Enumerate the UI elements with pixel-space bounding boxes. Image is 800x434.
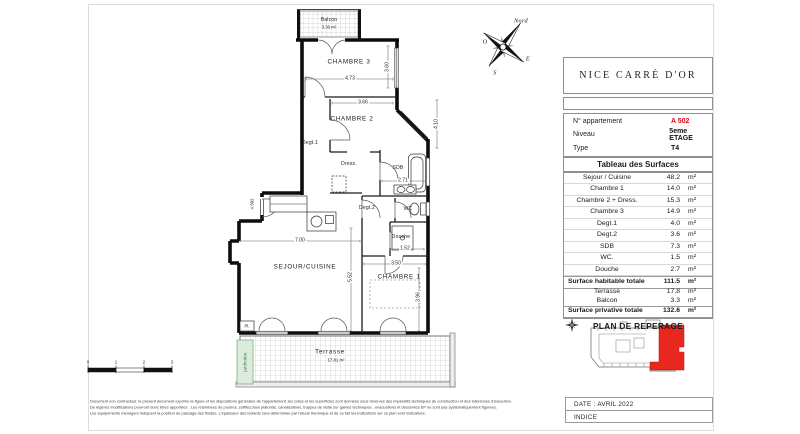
surface-row: Degt.1 4.0 m²: [564, 219, 712, 230]
compass-rose: [469, 9, 541, 82]
surfaces-table: Sejour / Cuisine 48.2 m² Chambre 1 14.0 …: [563, 172, 713, 319]
compass-north-label: Nord: [514, 18, 528, 25]
dim-chambre2-width: 3.66: [357, 101, 369, 106]
room-label-sejour: SEJOUR/CUISINE: [274, 264, 337, 271]
surface-row: Chambre 1 14.0 m²: [564, 184, 712, 195]
surface-row: Chambre 2 + Dress. 15.3 m²: [564, 196, 712, 207]
date-row: DATE : AVRIL 2022: [566, 398, 712, 411]
dim-sejour-width: 7.00: [294, 239, 306, 244]
surface-row: WC. 1.5 m²: [564, 253, 712, 264]
room-label-terrasse: Terrasse: [315, 349, 345, 356]
room-label-wc: WC: [404, 206, 413, 212]
room-label-chambre2: CHAMBRE 2: [330, 116, 373, 123]
entry-door-label: A 502: [250, 199, 255, 210]
surface-row: Sejour / Cuisine 48.2 m²: [564, 173, 712, 184]
indice-row: INDICE: [566, 411, 712, 424]
room-label-degt2: Degt.2: [359, 205, 375, 211]
room-label-balcon: Balcon: [321, 17, 338, 23]
surfaces-table-title: Tableau des Surfaces: [563, 157, 713, 172]
room-label-chambre1: CHAMBRE 1: [377, 274, 420, 281]
surface-row: Douche 2.7 m²: [564, 265, 712, 276]
area-label-balcon: 3.30 m²: [322, 25, 337, 30]
apartment-level: 5eme ETAGE: [669, 128, 712, 142]
surface-total-privative: Surface privative totale 132.6 m²: [564, 306, 712, 318]
area-label-terrasse: 17.81 m²: [328, 358, 345, 363]
surface-row-balcon: Balcon 3.3 m²: [564, 297, 712, 306]
info-row-niveau: Niveau 5eme ETAGE: [564, 128, 712, 142]
project-title: NICE CARRÉ D'OR: [579, 70, 697, 81]
surface-row: SDB 7.3 m²: [564, 242, 712, 253]
chambre1-dashed-zone: [370, 280, 420, 308]
info-label: N° appartement: [564, 118, 671, 125]
surface-row: Degt.2 3.6 m²: [564, 230, 712, 241]
empty-box: [563, 97, 713, 110]
info-row-type: Type T4: [564, 145, 712, 152]
placard-label: Pl.: [244, 324, 249, 329]
scalebar-tick-1: 1: [115, 360, 117, 365]
sdb-washbasin: [394, 185, 416, 194]
dim-douche-width: 1.52: [399, 247, 411, 252]
compass-south-label: S: [493, 70, 496, 77]
disclaimer-line-3: Les équipements ménagers indiquent la po…: [90, 411, 558, 417]
room-label-sdb: SDB: [393, 165, 404, 171]
dress-closet: [332, 176, 346, 192]
scalebar-tick-3: 3: [171, 360, 173, 365]
apartment-number: A 502: [671, 118, 689, 125]
plan-sheet: Balcon 3.30 m² CHAMBRE 3 4.73 3.60 CHAMB…: [0, 0, 800, 434]
project-title-box: NICE CARRÉ D'OR: [563, 57, 713, 94]
surface-total-habitable: Surface habitable totale 111.5 m²: [564, 276, 712, 288]
scalebar-tick-0: 0: [87, 360, 89, 365]
dim-chambre1-width: 3.50: [390, 262, 402, 267]
room-label-douche: Douche: [392, 234, 410, 240]
dim-chambre2-height: 4.10: [435, 118, 440, 130]
info-label: Type: [564, 145, 671, 152]
kitchen-counter: [270, 196, 336, 231]
compass-west-label: O: [483, 39, 488, 46]
date-indice-box: DATE : AVRIL 2022 INDICE: [565, 397, 713, 423]
surface-row: Chambre 3 14.9 m²: [564, 207, 712, 218]
floor-plan: [230, 9, 455, 387]
info-label: Niveau: [564, 131, 669, 138]
jardiniere-label: jardinière: [243, 352, 248, 371]
room-label-chambre3: CHAMBRE 3: [327, 59, 370, 66]
apartment-info-table: N° appartement A 502 Niveau 5eme ETAGE T…: [563, 113, 713, 157]
dim-chambre3-width: 4.73: [344, 77, 356, 82]
scalebar-tick-2: 2: [143, 360, 145, 365]
room-label-degt1: Degt.1: [302, 140, 318, 146]
surface-row-terrasse: Terrasse 17.8 m²: [564, 289, 712, 298]
terrace: [236, 333, 455, 387]
compass-east-label: E: [526, 56, 530, 63]
room-label-dress: Dress.: [341, 161, 357, 167]
dim-chambre1-height: 3.96: [417, 291, 422, 303]
dim-sejour-height: 5.52: [349, 271, 354, 283]
dim-chambre3-height: 3.60: [386, 61, 391, 73]
dim-sdb-width: 2.71: [397, 179, 409, 184]
reperage-title: PLAN DE REPERAGE: [563, 321, 713, 331]
scale-bar: [88, 366, 172, 374]
disclaimer-line-2: De légères modifications pourront donc ê…: [90, 405, 558, 411]
apartment-type: T4: [671, 145, 679, 152]
legal-disclaimer: Document non contractuel: le present doc…: [90, 399, 558, 417]
site-plan-unit-highlight: [650, 325, 684, 370]
info-row-appartement: N° appartement A 502: [564, 118, 712, 125]
